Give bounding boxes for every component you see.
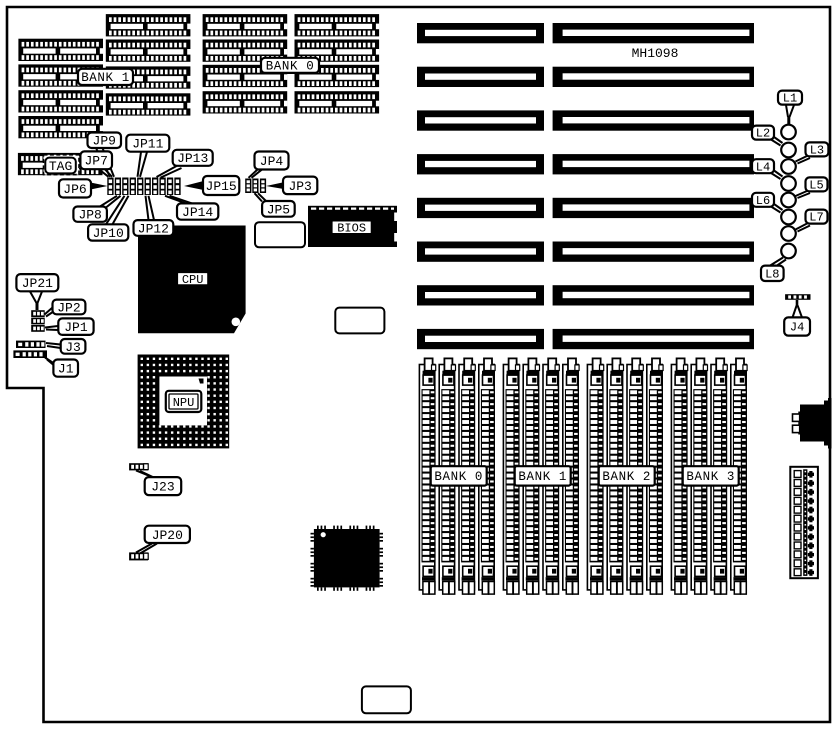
svg-text:JP15: JP15 xyxy=(206,179,237,194)
svg-text:BANK 0: BANK 0 xyxy=(266,60,315,74)
svg-text:L7: L7 xyxy=(809,211,823,225)
svg-text:JP1: JP1 xyxy=(64,320,88,335)
svg-text:JP21: JP21 xyxy=(22,276,53,291)
svg-text:JP3: JP3 xyxy=(288,179,311,194)
svg-text:MH1098: MH1098 xyxy=(632,46,679,61)
svg-text:J1: J1 xyxy=(58,362,74,377)
svg-text:JP10: JP10 xyxy=(93,226,124,241)
svg-text:JP14: JP14 xyxy=(182,205,213,220)
svg-text:JP20: JP20 xyxy=(152,528,183,543)
svg-text:BANK 3: BANK 3 xyxy=(686,470,735,484)
svg-text:L8: L8 xyxy=(765,267,779,281)
svg-text:L4: L4 xyxy=(756,160,770,174)
svg-text:BANK 0: BANK 0 xyxy=(434,470,483,484)
svg-text:BANK 1: BANK 1 xyxy=(518,470,567,484)
svg-text:JP6: JP6 xyxy=(63,182,86,197)
svg-text:CPU: CPU xyxy=(182,273,204,287)
svg-text:JP7: JP7 xyxy=(84,154,107,169)
svg-text:JP9: JP9 xyxy=(93,134,116,149)
svg-text:BIOS: BIOS xyxy=(337,221,366,235)
svg-text:J4: J4 xyxy=(790,321,804,335)
svg-text:JP12: JP12 xyxy=(138,221,169,236)
svg-text:NPU: NPU xyxy=(173,396,195,410)
svg-text:BANK 2: BANK 2 xyxy=(602,470,651,484)
svg-text:JP4: JP4 xyxy=(260,154,284,169)
svg-text:L3: L3 xyxy=(810,144,824,158)
svg-text:JP8: JP8 xyxy=(78,208,101,223)
svg-text:L6: L6 xyxy=(756,194,770,208)
svg-text:L1: L1 xyxy=(783,92,797,106)
svg-text:JP13: JP13 xyxy=(177,151,208,166)
svg-text:J3: J3 xyxy=(65,340,81,355)
svg-text:L2: L2 xyxy=(756,127,770,141)
svg-text:BANK 1: BANK 1 xyxy=(81,71,130,85)
svg-text:L5: L5 xyxy=(809,179,823,193)
svg-text:JP5: JP5 xyxy=(267,202,290,217)
svg-text:JP2: JP2 xyxy=(57,300,80,315)
svg-text:TAG: TAG xyxy=(49,159,72,174)
svg-text:JP11: JP11 xyxy=(132,137,163,152)
svg-text:J23: J23 xyxy=(151,480,174,495)
